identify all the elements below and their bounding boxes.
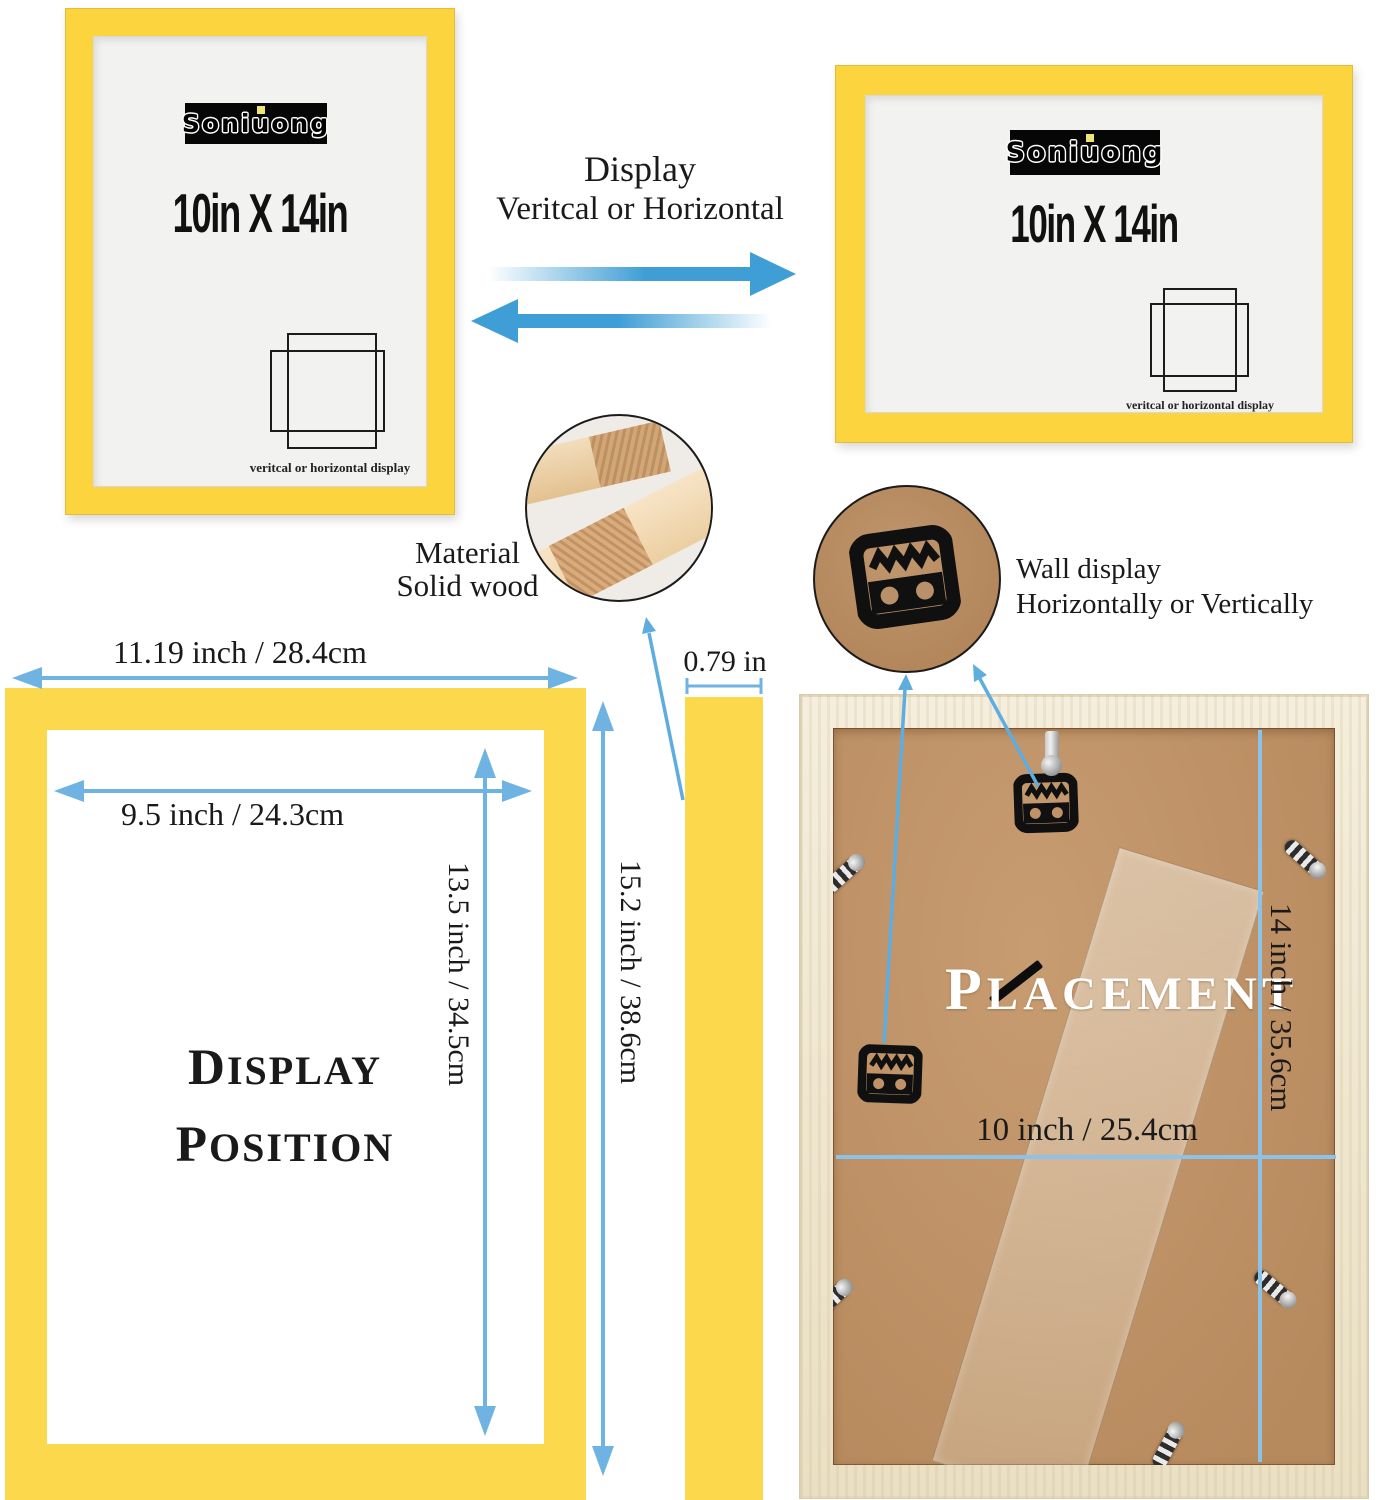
display-position-heading: DISPLAY POSITION: [135, 1030, 435, 1184]
brand-logo-badge: Soniuong: [1010, 130, 1160, 175]
orientation-rect-landscape-icon: [270, 350, 385, 432]
metal-turn-clip: [1282, 837, 1325, 878]
orientation-note-line2: Veritcal or Horizontal: [455, 190, 825, 229]
back-height-label: 14 inch / 35.6cm: [1263, 903, 1299, 1111]
mdf-back-board: PLACEMENT: [833, 728, 1335, 1465]
logo-i-dot: [1086, 134, 1094, 142]
brand-logo-text: Soniuong: [1006, 137, 1165, 168]
inner-height-label: 13.5 inch / 34.5cm: [441, 862, 475, 1086]
frame-size-label: 10in X 14in: [124, 183, 397, 246]
metal-turn-clip: [833, 1280, 851, 1321]
wall-display-note: Wall display Horizontally or Vertically: [1016, 552, 1356, 622]
wood-end-grain: [549, 508, 653, 602]
wall-display-note-line1: Wall display: [1016, 552, 1356, 587]
inner-width-label: 9.5 inch / 24.3cm: [60, 796, 405, 833]
orientation-note: Display Veritcal or Horizontal: [455, 148, 825, 229]
thickness-bracket: [687, 678, 761, 694]
frame-caption: veritcal or horizontal display: [195, 460, 465, 476]
sawtooth-hanger-icon: [1013, 772, 1079, 834]
orientation-note-line1: Display: [455, 148, 825, 190]
sawtooth-hanger-icon: [857, 1044, 923, 1104]
sawtooth-hanger-icon: [847, 522, 963, 632]
swap-left-arrow-icon: [471, 299, 772, 343]
product-infographic: Soniuong 10in X 14in veritcal or horizon…: [0, 0, 1378, 1500]
placement-heading: PLACEMENT: [945, 960, 1275, 1020]
swap-right-arrow-icon: [488, 252, 796, 296]
vertical-frame-photo: Soniuong 10in X 14in veritcal or horizon…: [65, 8, 455, 515]
wood-end-grain: [589, 421, 671, 488]
wall-hanger-callout-circle: [813, 485, 1001, 673]
metal-hanging-tab: [1045, 731, 1059, 761]
material-callout-circle: [525, 414, 713, 602]
outer-height-label: 15.2 inch / 38.6cm: [613, 860, 647, 1084]
material-note: Material Solid wood: [385, 536, 550, 603]
thickness-label: 0.79 in: [650, 645, 800, 679]
brand-logo-text: Soniuong: [182, 109, 330, 138]
metal-turn-clip: [1150, 1425, 1184, 1465]
brand-logo-badge: Soniuong: [185, 103, 327, 144]
horizontal-frame-photo: Soniuong 10in X 14in veritcal or horizon…: [835, 65, 1353, 443]
metal-turn-clip: [1251, 1268, 1294, 1308]
plexiglass-sheet: [931, 847, 1264, 1465]
logo-i-dot: [257, 106, 265, 114]
metal-turn-clip: [833, 855, 863, 896]
wall-display-note-line2: Horizontally or Vertically: [1016, 587, 1356, 622]
frame-size-label: 10in X 14in: [913, 194, 1276, 255]
display-position-line2: POSITION: [135, 1107, 435, 1184]
orientation-rect-landscape-icon: [1150, 303, 1249, 377]
frame-caption: veritcal or horizontal display: [1080, 398, 1320, 413]
display-position-line1: DISPLAY: [135, 1030, 435, 1107]
outer-width-label: 11.19 inch / 28.4cm: [40, 634, 440, 671]
back-width-label: 10 inch / 25.4cm: [917, 1112, 1257, 1149]
frame-profile-strip: [685, 697, 763, 1500]
material-note-line1: Material: [385, 536, 550, 569]
material-note-line2: Solid wood: [385, 569, 550, 602]
placement-title: PLACEMENT: [945, 960, 1275, 1020]
